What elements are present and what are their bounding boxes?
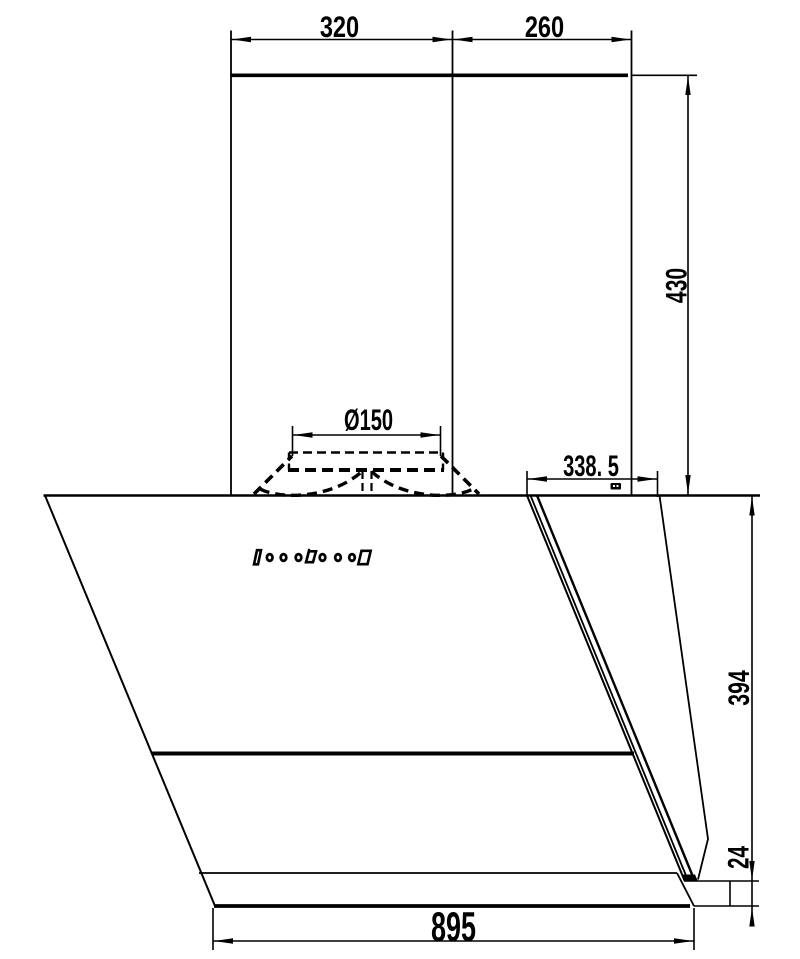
svg-text:394: 394 [724,670,756,706]
svg-text:Ø150: Ø150 [344,404,393,437]
svg-text:895: 895 [431,904,476,950]
svg-text:430: 430 [661,268,693,303]
svg-text:320: 320 [320,10,359,43]
svg-text:24: 24 [723,845,755,869]
svg-text:338. 5: 338. 5 [563,450,619,483]
svg-text:260: 260 [525,10,564,43]
